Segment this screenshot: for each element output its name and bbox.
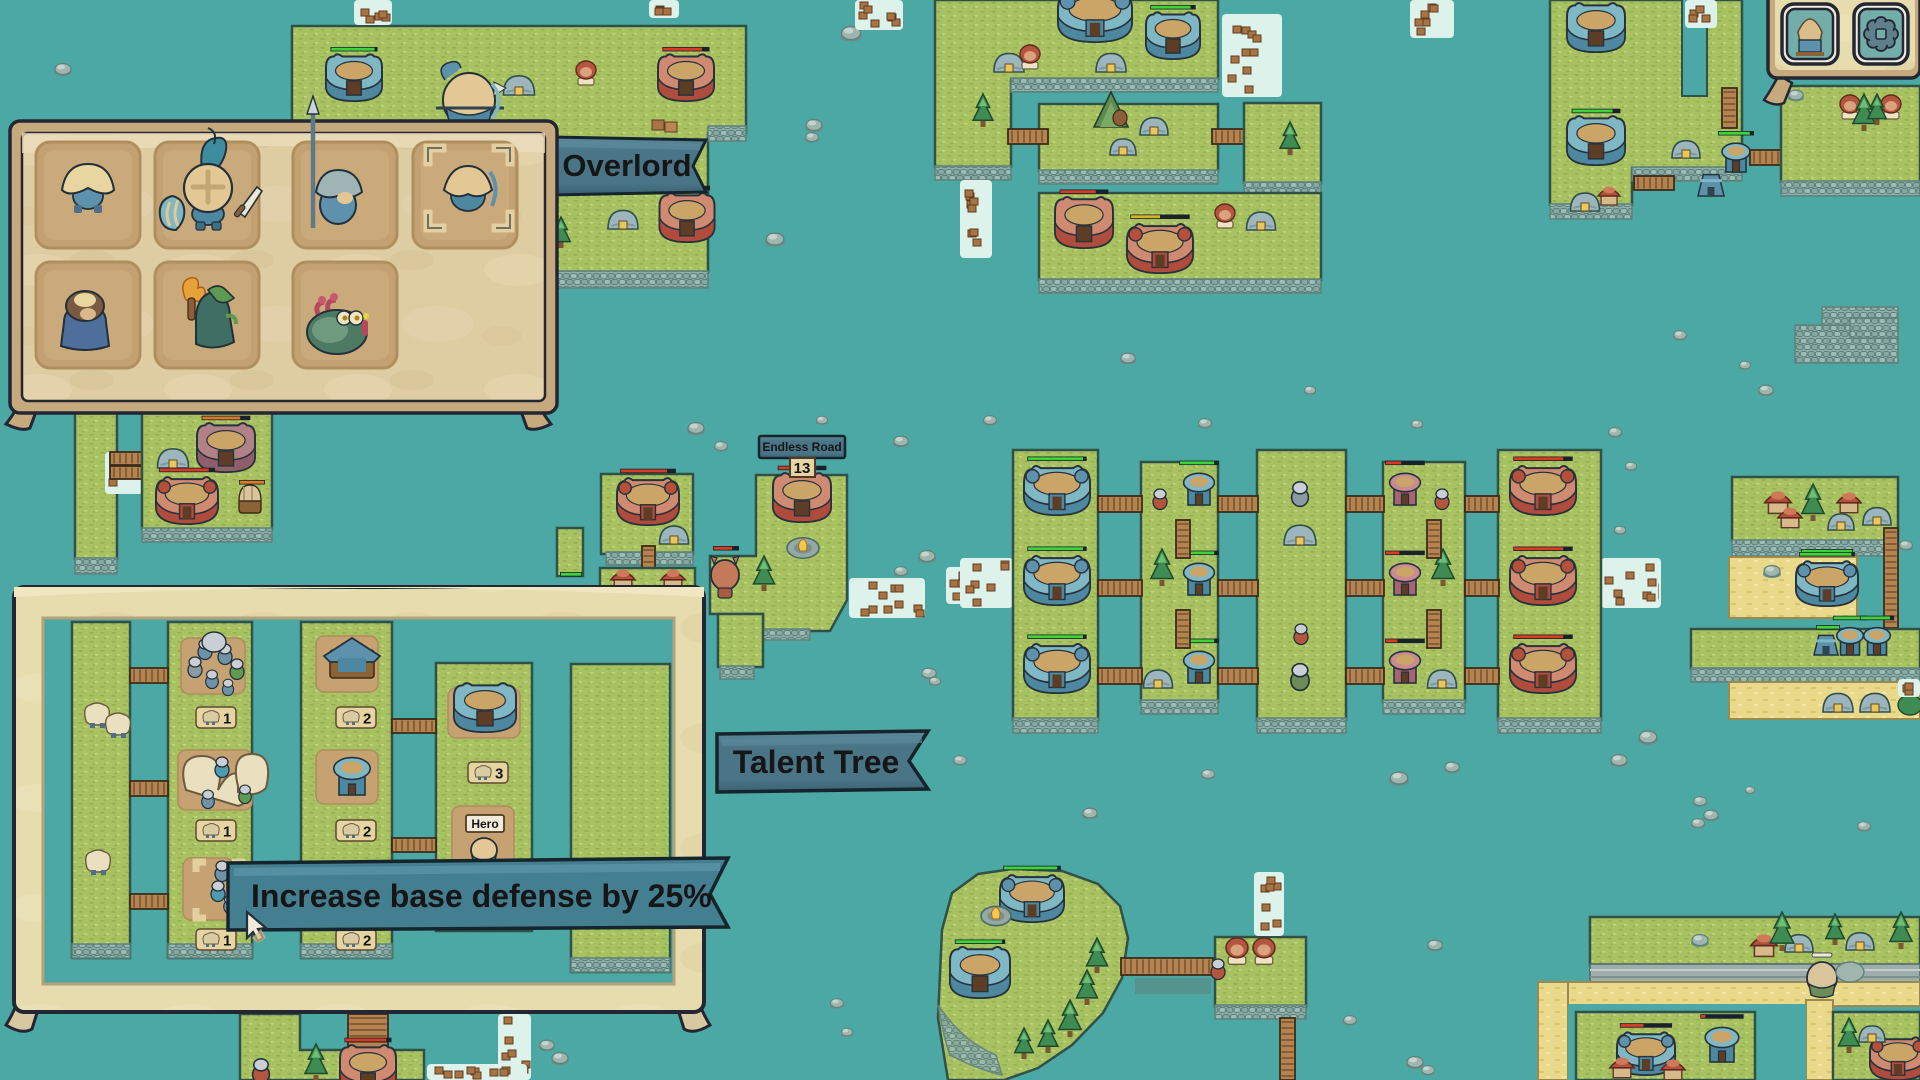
svg-text:Overlord: Overlord bbox=[562, 148, 691, 183]
svg-text:1: 1 bbox=[223, 711, 231, 728]
svg-text:1: 1 bbox=[223, 824, 231, 841]
svg-text:13: 13 bbox=[794, 460, 811, 477]
svg-text:3: 3 bbox=[495, 766, 503, 783]
svg-text:2: 2 bbox=[363, 711, 371, 728]
svg-text:2: 2 bbox=[363, 933, 371, 950]
svg-text:Hero: Hero bbox=[471, 817, 498, 831]
svg-text:Increase base defense by 25%: Increase base defense by 25% bbox=[251, 878, 712, 914]
svg-text:Endless Road: Endless Road bbox=[762, 440, 841, 454]
svg-text:2: 2 bbox=[363, 824, 371, 841]
svg-text:1: 1 bbox=[223, 933, 231, 950]
svg-text:Talent Tree: Talent Tree bbox=[733, 744, 900, 780]
